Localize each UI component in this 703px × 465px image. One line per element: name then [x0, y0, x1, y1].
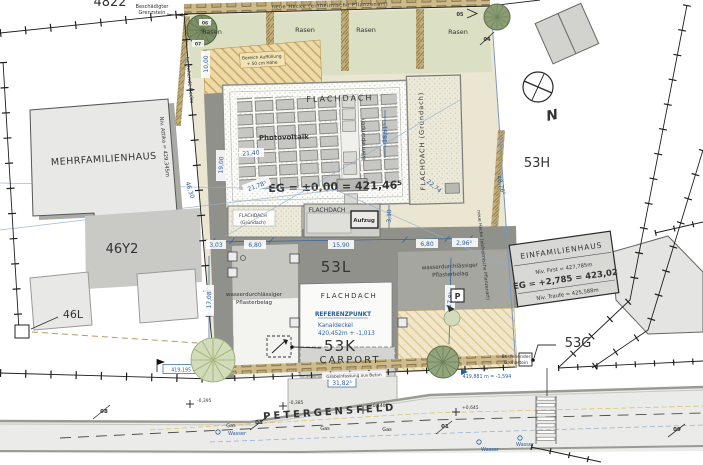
spot-elevation-3: +0,140	[369, 403, 386, 409]
parcel-4822-label: 4822	[93, 0, 126, 10]
site-plan-canvas: FLACHDACH Photovoltaik Wärmepumpen FLACH…	[0, 0, 703, 465]
fill-area-note: Bereich Auffüllung + 50 cm Höhe	[240, 51, 286, 68]
flachdach-label-lower: FLACHDACH	[321, 292, 378, 300]
gas-label-3: Gas	[382, 427, 392, 433]
flachdach-label-mid: FLACHDACH	[309, 207, 346, 214]
dim-6-80-a: 6,80	[248, 242, 262, 249]
spot-elevation-1: -0,395	[197, 398, 212, 404]
carport-label: CARPORT	[319, 355, 380, 366]
kanaldeckel-label: Kanaldeckel	[318, 323, 353, 329]
site-plan-drawing: FLACHDACH Photovoltaik Wärmepumpen FLACH…	[0, 0, 703, 465]
dim-31-82: 31,82⁵	[332, 380, 352, 387]
photovoltaik-label: Photovoltaik	[259, 133, 310, 142]
road-marker-08: 08	[100, 409, 108, 415]
tree-marker-07: 07	[195, 42, 201, 48]
dim-6-80-b: 6,80	[420, 241, 434, 248]
permeable-paving-left-label1: wasserdurchlässiger	[226, 292, 283, 298]
dim-3-10: 3,10	[386, 209, 393, 223]
dim-21-40: 21,40	[242, 149, 260, 157]
road-marker-09: 09	[673, 427, 681, 433]
existing-boundary-stone-label1: Bestehender	[502, 354, 531, 360]
spot-elevation-2: -0,385	[289, 400, 304, 406]
existing-boundary-stone-label2: Grenzstein	[504, 360, 528, 366]
road-marker-03: 03	[255, 420, 263, 426]
parcel-53g-label: 53G	[565, 336, 592, 351]
aufzug-label: Aufzug	[353, 218, 375, 224]
gas-label-2: Gas	[320, 426, 330, 432]
tree-marker-05: 05	[457, 12, 464, 18]
lawn-label-2: Rasen	[295, 26, 315, 34]
parcel-53h-label: 53H	[524, 156, 550, 171]
tree-icon	[191, 338, 235, 382]
dim-10-00: 10,00	[203, 55, 210, 72]
parcel-46l-label: 46L	[63, 308, 84, 321]
wasser-label-1: Wasser	[228, 431, 247, 437]
dim-15-90: 15,90	[332, 242, 349, 249]
dim-2-96: 2,96⁵	[456, 240, 472, 247]
dim-3-03: 3,03	[209, 242, 223, 249]
parcel-46y2-label: 46Y2	[106, 242, 139, 257]
flachdach-label-main: FLACHDACH	[306, 93, 373, 104]
lower-roof-boxes: FLACHDACH (Gründach) FLACHDACH Aufzug	[228, 204, 380, 237]
dim-18-51: 18,51⁵	[382, 123, 390, 143]
tree-icon	[444, 310, 460, 326]
permeable-paving-left-label2: Pflasterbelag	[236, 300, 272, 306]
dim-19-00: 19,00	[218, 156, 226, 174]
lawn-label-3: Rasen	[356, 26, 376, 34]
tree-icon	[427, 346, 459, 378]
parcel-53l-label: 53L	[321, 258, 351, 276]
road-marker-01: 01	[441, 424, 449, 430]
dim-17-08: 17,08	[206, 291, 214, 309]
benchmark-right: 419,881 m = -1,594	[463, 374, 512, 380]
parking-sign-label: P	[455, 292, 461, 301]
wasser-label-2: Wasser	[481, 447, 500, 453]
parcel-53k-label: 53K	[324, 337, 356, 355]
gruendach-left-label1: FLACHDACH	[239, 213, 267, 219]
tree-marker-06: 06	[202, 21, 208, 27]
gas-label-1: Gas	[226, 423, 236, 430]
lawn-label-1: Rasen	[202, 28, 222, 36]
damaged-boundary-stone-label2: Grenzstein	[139, 10, 166, 16]
lawn-label-4: Rasen	[448, 28, 468, 36]
spot-elevation-4: +0,645	[462, 405, 479, 411]
referenzpunkt-label: REFERENZPUNKT	[315, 312, 371, 318]
